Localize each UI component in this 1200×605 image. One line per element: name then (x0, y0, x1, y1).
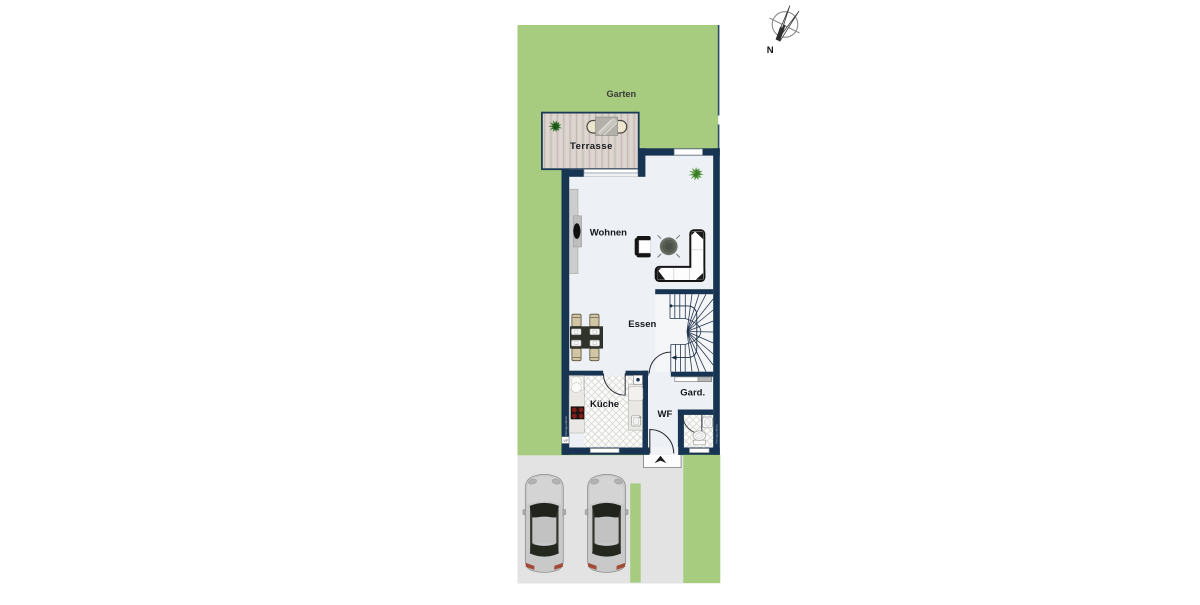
svg-text:Gard.: Gard. (680, 388, 705, 399)
svg-text:VF: VF (563, 438, 569, 443)
svg-text:Garten: Garten (607, 89, 637, 99)
svg-text:Wohnen: Wohnen (590, 228, 627, 239)
svg-text:Terrasse: Terrasse (570, 141, 613, 152)
svg-text:Essen: Essen (628, 319, 656, 330)
svg-text:Immogrundriss: Immogrundriss (714, 424, 718, 444)
svg-text:Immogrundriss: Immogrundriss (564, 416, 568, 436)
svg-text:N: N (767, 45, 774, 56)
svg-text:WF: WF (658, 409, 673, 420)
svg-text:Küche: Küche (590, 399, 619, 410)
